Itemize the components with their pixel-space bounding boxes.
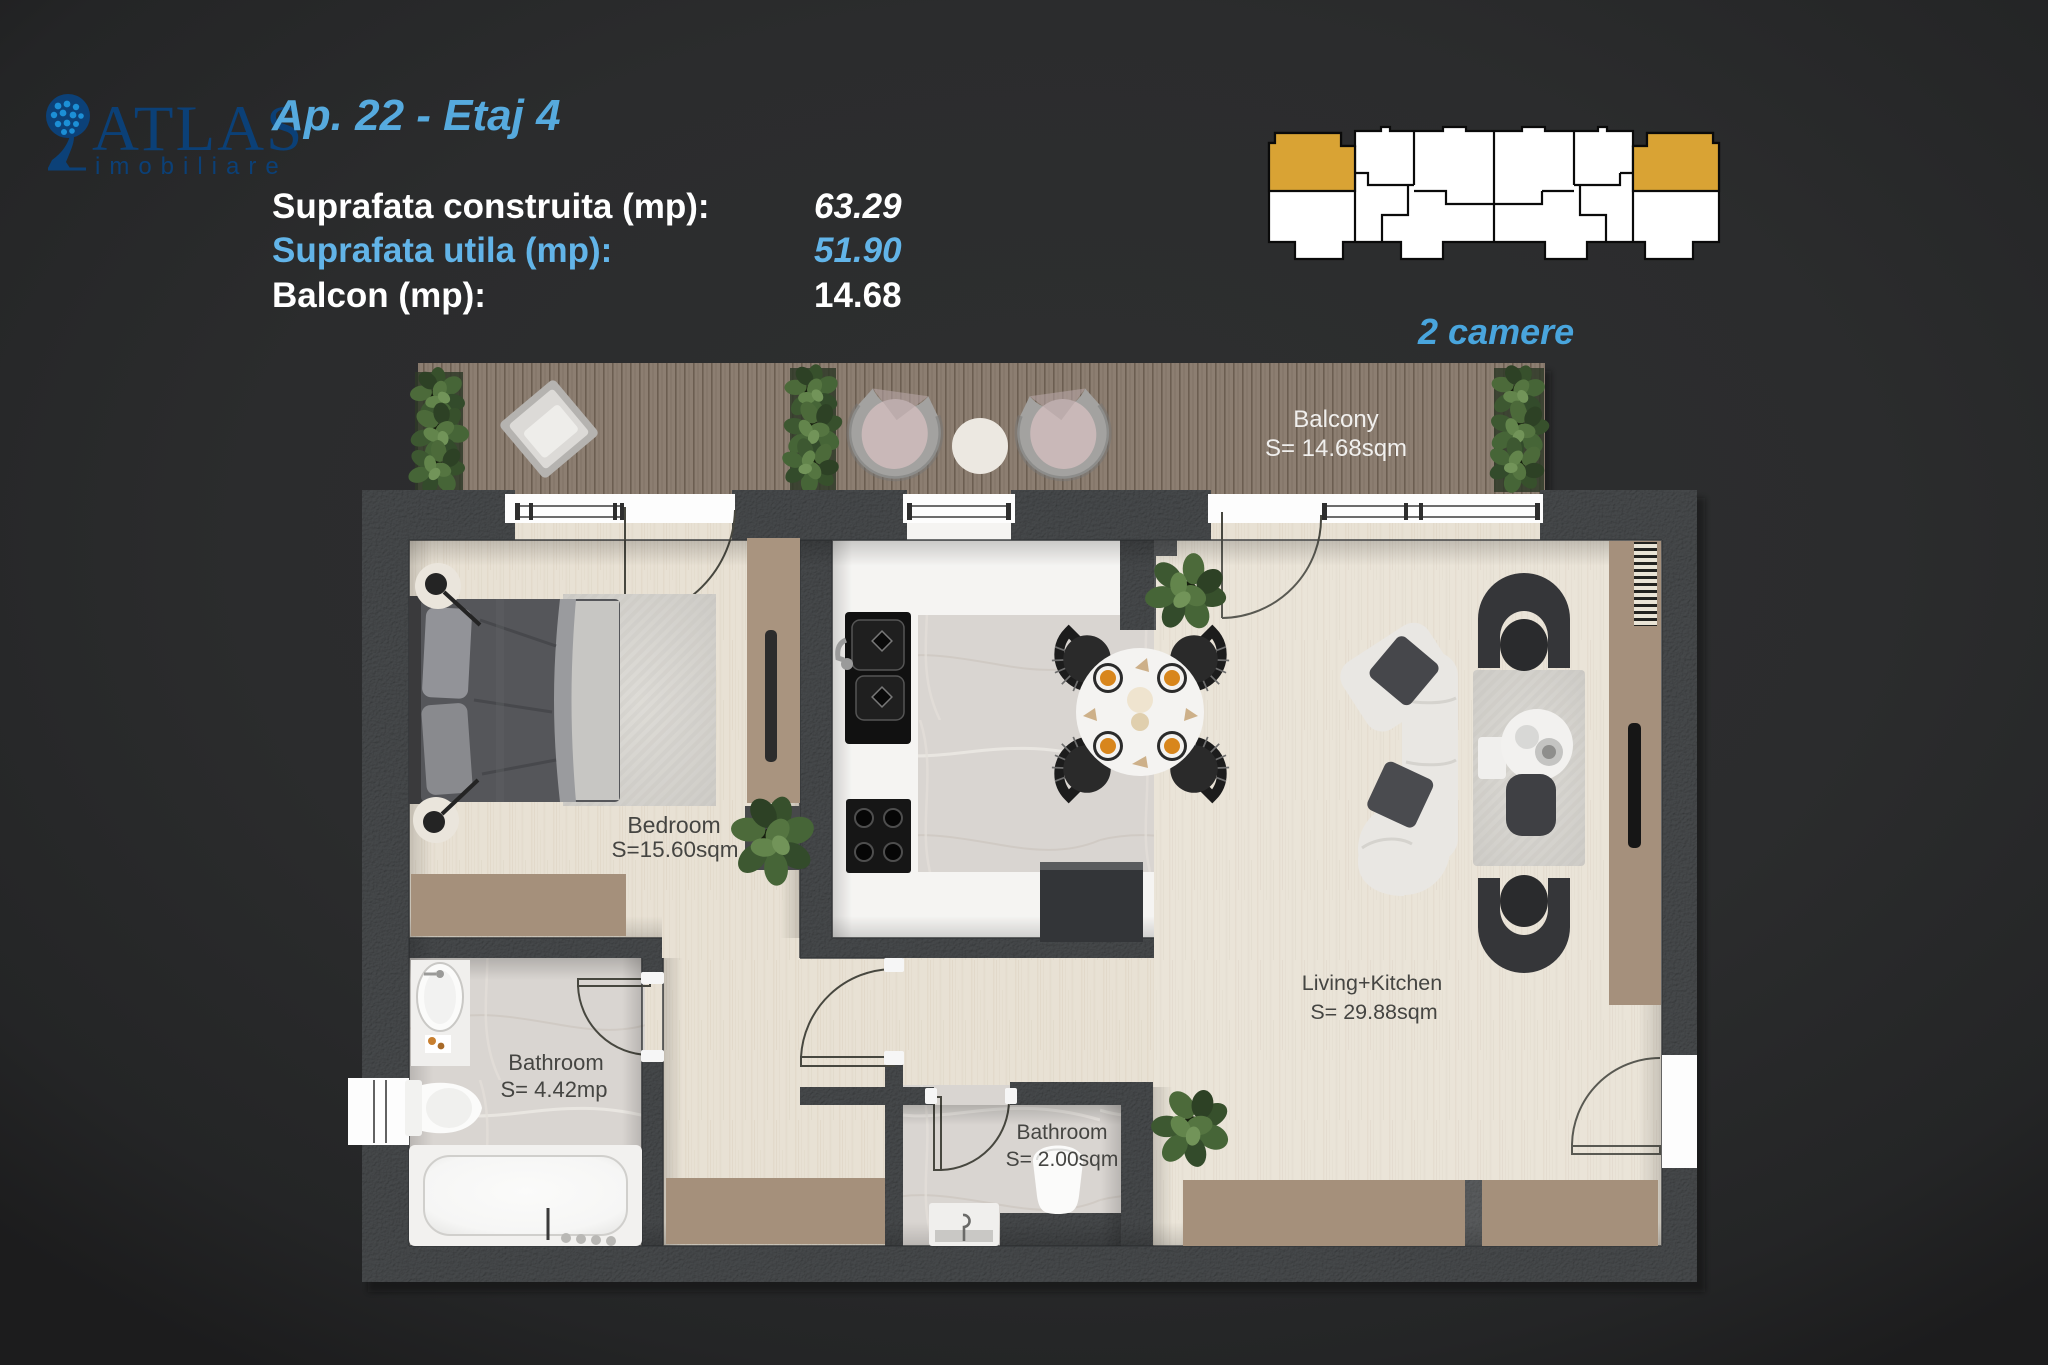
svg-text:Bedroom: Bedroom <box>627 812 720 838</box>
svg-text:S= 29.88sqm: S= 29.88sqm <box>1310 1000 1437 1024</box>
svg-text:S= 4.42mp: S= 4.42mp <box>500 1077 607 1102</box>
svg-text:S=15.60sqm: S=15.60sqm <box>612 837 739 862</box>
svg-text:Bathroom: Bathroom <box>1016 1121 1107 1144</box>
svg-text:Living+Kitchen: Living+Kitchen <box>1302 971 1442 995</box>
svg-text:Bathroom: Bathroom <box>508 1050 603 1075</box>
svg-text:S= 14.68sqm: S= 14.68sqm <box>1265 435 1407 462</box>
svg-text:S= 2.00sqm: S= 2.00sqm <box>1006 1148 1119 1171</box>
svg-text:Balcony: Balcony <box>1293 406 1378 433</box>
